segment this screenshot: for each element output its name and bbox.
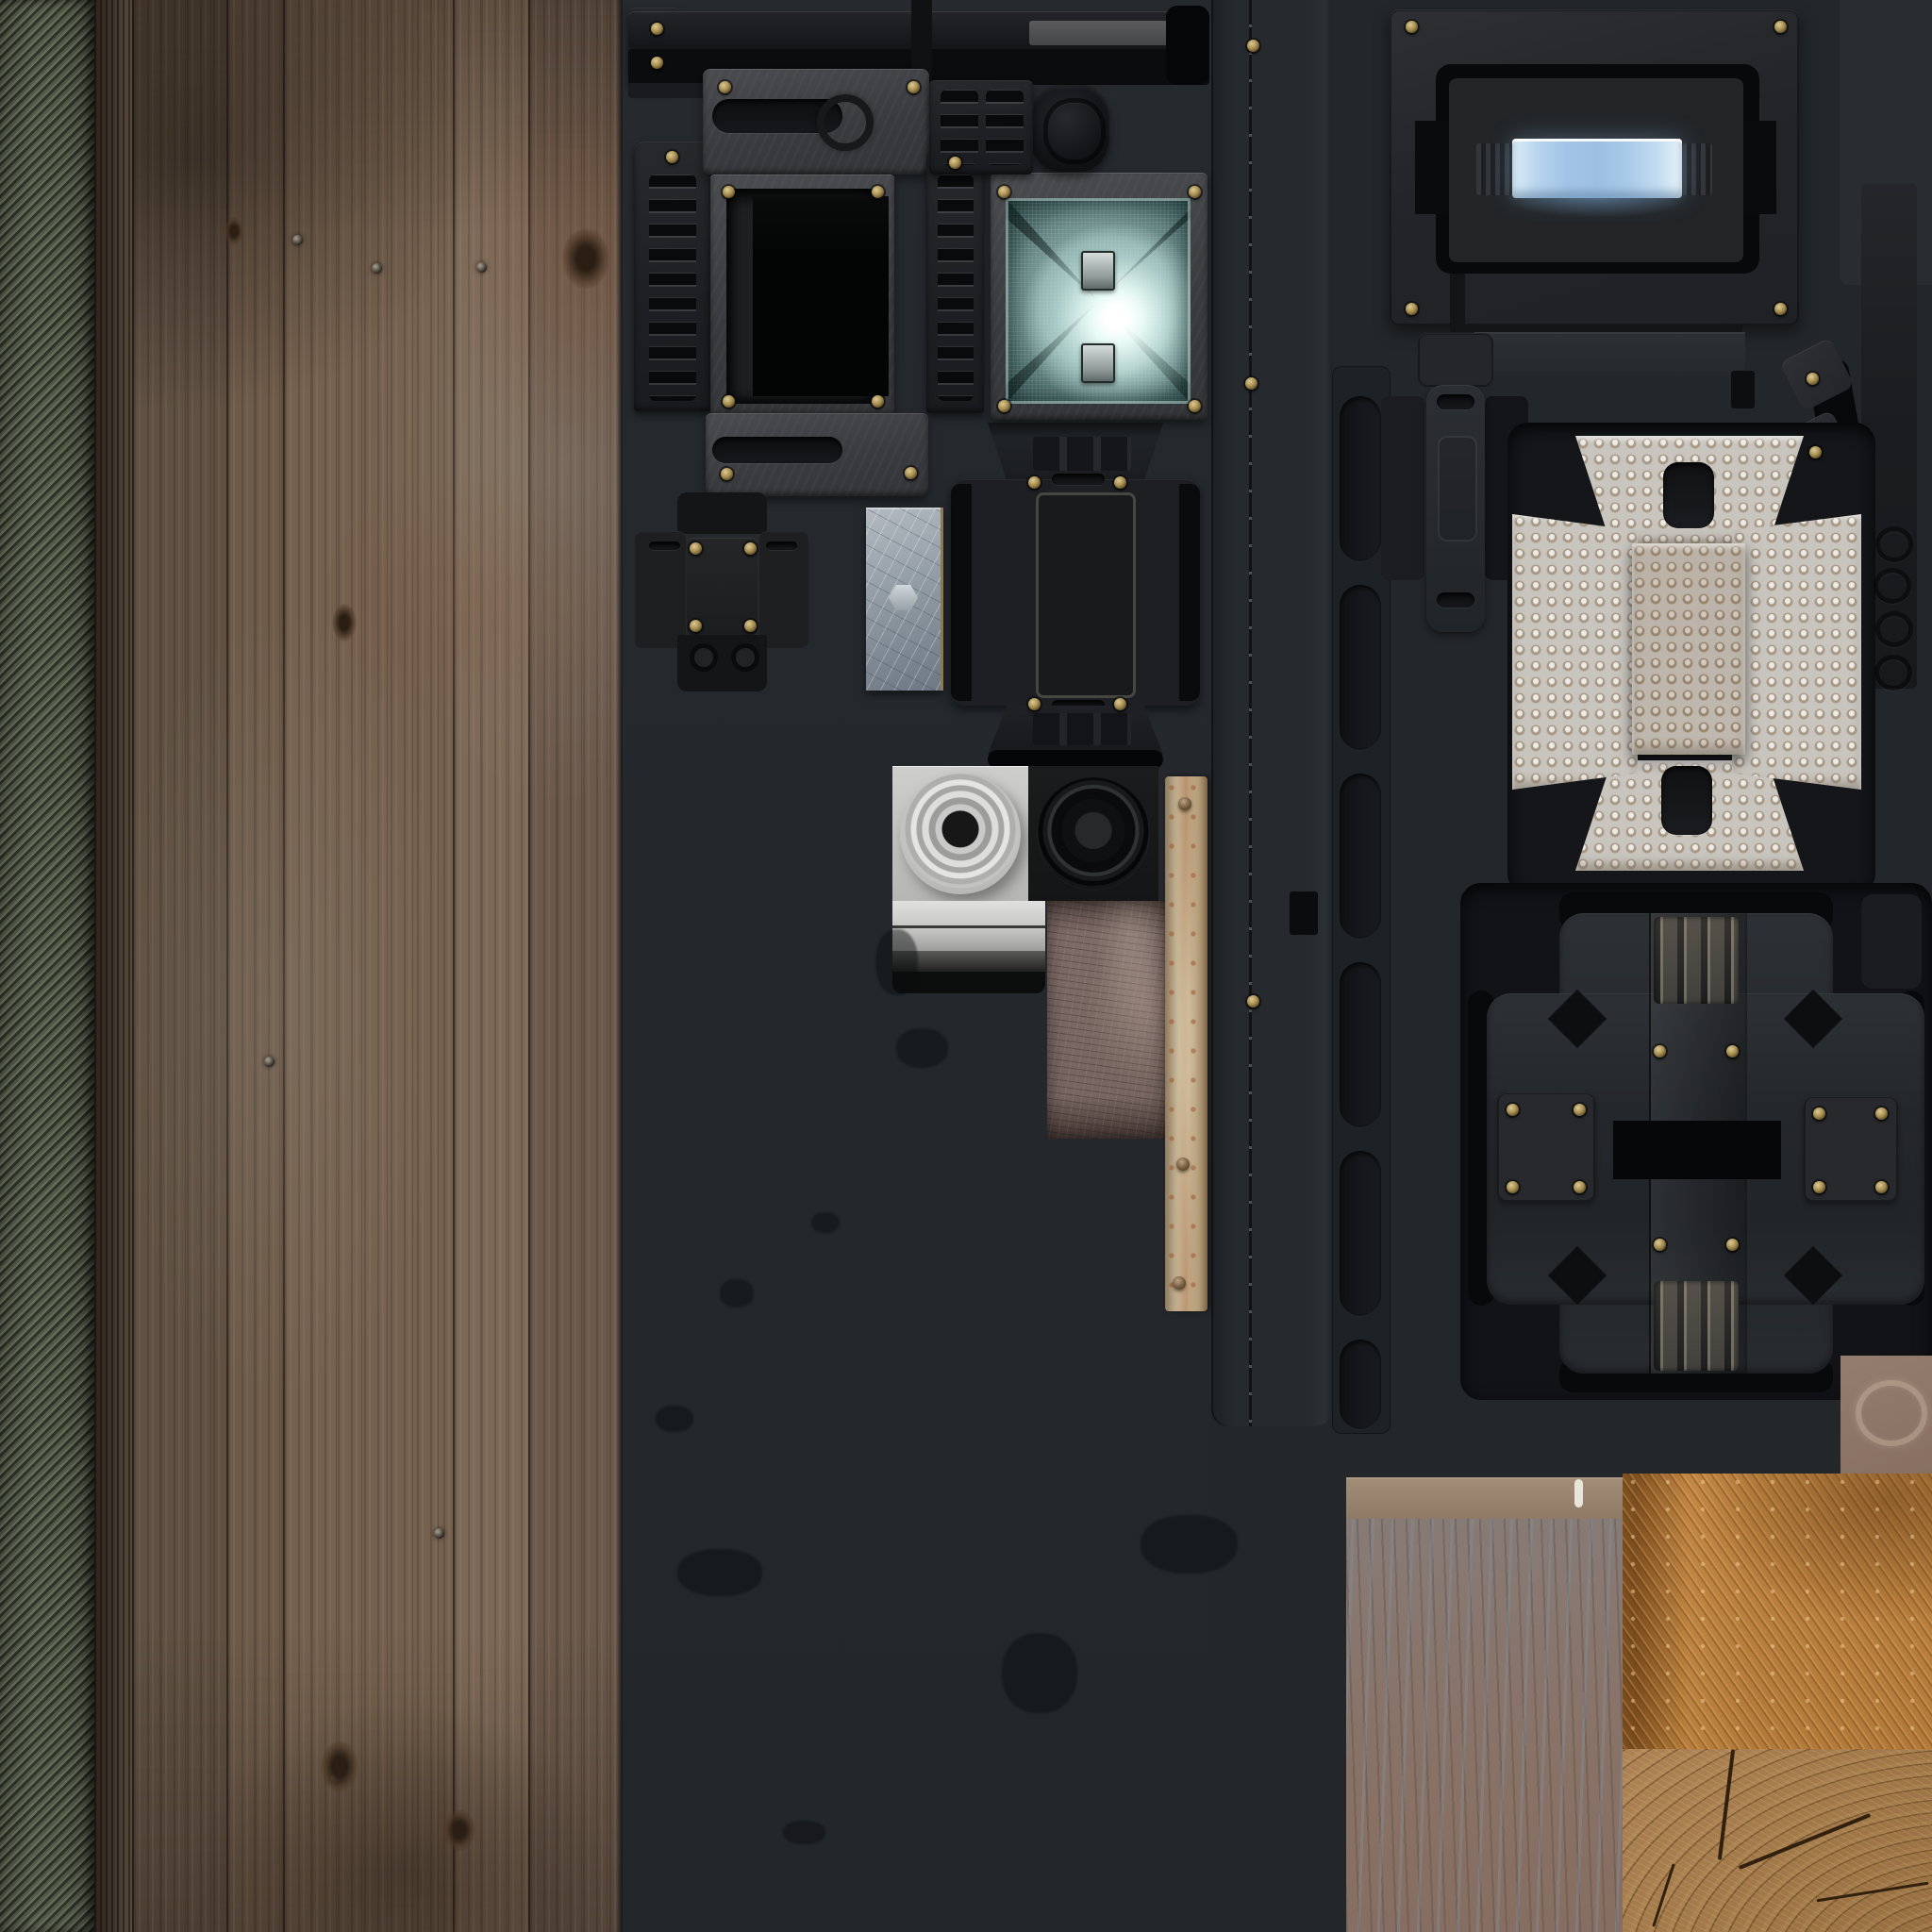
vent-block	[929, 80, 1033, 175]
ribbed-strip	[0, 0, 94, 1932]
screw	[1726, 1239, 1739, 1251]
rust-circle-square	[1840, 1356, 1932, 1481]
bracket-wing-left	[635, 531, 686, 648]
texture-atlas	[0, 0, 1932, 1932]
track-slot	[1340, 585, 1381, 750]
monitor-bottom-plate	[706, 413, 928, 496]
vent-dashes-right	[986, 90, 1024, 165]
divider-notch	[1290, 891, 1318, 935]
side-bar-right	[1179, 484, 1200, 701]
top-right-plate	[1861, 894, 1922, 989]
bracket-hole	[731, 643, 759, 672]
screw	[1245, 377, 1257, 390]
hex-bolt	[889, 585, 918, 610]
screw	[1507, 1104, 1519, 1116]
sawn-orange-wood	[1623, 1474, 1932, 1749]
shelf-notch	[1731, 371, 1755, 408]
nail	[476, 262, 487, 273]
divider-column	[1211, 0, 1332, 1426]
screw	[1189, 400, 1201, 412]
stain-blob	[896, 1028, 948, 1068]
monitor-frame	[710, 175, 894, 416]
wing-slot	[649, 541, 680, 550]
lens-tab-right	[1743, 121, 1776, 214]
screw	[719, 81, 731, 93]
center-recess	[1036, 492, 1136, 698]
screw	[690, 620, 702, 632]
speaker-cone	[1037, 777, 1150, 891]
screw	[1114, 698, 1126, 710]
wood-knot	[332, 604, 357, 641]
screw	[1574, 1104, 1586, 1116]
screw	[1654, 1239, 1666, 1251]
screw	[1574, 1181, 1586, 1193]
connector-block	[1418, 333, 1493, 387]
screw	[723, 186, 735, 198]
screw	[1875, 1181, 1888, 1193]
divider-seam	[1249, 0, 1252, 1426]
flap-body	[951, 479, 1200, 706]
paint-drip	[1574, 1479, 1583, 1507]
cross-flap-right	[1732, 514, 1861, 790]
rail-grooves-top	[1654, 917, 1739, 1004]
rivet	[1178, 797, 1191, 810]
screw	[1875, 1108, 1888, 1120]
crack	[1718, 1749, 1735, 1860]
screw	[949, 157, 961, 169]
lamp-bracket-bottom	[1081, 343, 1115, 383]
crack	[1652, 1863, 1674, 1927]
knob-ring	[1043, 98, 1106, 164]
leather-patch	[1047, 901, 1165, 1139]
nut-ring	[1875, 611, 1913, 647]
rivet	[1176, 1158, 1190, 1171]
flap-top	[988, 423, 1163, 481]
crack	[1817, 1882, 1929, 1903]
dogbone-rail	[1426, 385, 1485, 632]
wood-knot	[443, 1809, 475, 1851]
rail-grooves-bottom	[1654, 1281, 1739, 1371]
wood-planks	[132, 0, 623, 1932]
rail-slot-top	[1437, 394, 1474, 409]
rail-inner	[1438, 436, 1477, 541]
monitor-vent-left	[634, 142, 711, 411]
screw	[908, 81, 920, 93]
bracket-hole	[690, 643, 718, 672]
flap-ribs	[1033, 437, 1131, 471]
screw	[651, 23, 663, 35]
screw	[1406, 21, 1418, 33]
nut-ring	[1874, 655, 1912, 691]
screw	[1774, 303, 1787, 315]
track-slot	[1340, 1340, 1381, 1429]
stain-blob	[677, 1549, 762, 1596]
screw	[721, 468, 733, 480]
screw	[1247, 995, 1259, 1008]
track-slot	[1340, 774, 1381, 939]
screw	[1507, 1181, 1519, 1193]
monitor-top-plate	[703, 69, 929, 175]
screw	[1406, 303, 1418, 315]
knob	[1030, 85, 1109, 172]
screw	[998, 186, 1010, 198]
black-speaker	[1028, 766, 1158, 901]
vent-dashes-left	[941, 90, 978, 165]
screw	[744, 620, 757, 632]
stain-blob	[656, 1406, 693, 1432]
stain-blob	[811, 1212, 840, 1233]
glowing-lens	[1512, 139, 1682, 198]
wood-end-grain	[1623, 1749, 1932, 1932]
cross-black-band	[1613, 1121, 1781, 1179]
rust-painted-panel	[1346, 1477, 1624, 1932]
monitor-vent-mid	[926, 146, 984, 413]
screw	[744, 542, 757, 555]
wing-slot	[766, 541, 797, 550]
screw	[872, 186, 884, 198]
stain-blob	[875, 929, 918, 995]
nail	[292, 235, 303, 245]
rail-slot-bottom	[1437, 592, 1474, 608]
screw	[1028, 698, 1041, 710]
side-bar-left	[951, 484, 972, 701]
white-speaker	[892, 766, 1028, 901]
wing-left	[1381, 396, 1424, 580]
stain-blob	[1002, 1633, 1077, 1713]
track-slot	[1340, 396, 1381, 561]
cross-slot-top	[1663, 462, 1714, 528]
stain-blob	[1141, 1515, 1238, 1574]
frame-seam	[1450, 274, 1465, 330]
screw	[1114, 476, 1126, 489]
wood-plank-edge	[94, 0, 132, 1932]
cross-flap-left	[1512, 514, 1638, 790]
lens-tab-left	[1415, 121, 1449, 214]
wood-right-shadow	[616, 0, 623, 1932]
lens-cap-left	[1476, 143, 1512, 195]
handle-recess	[712, 437, 842, 463]
cross-center	[1632, 543, 1745, 755]
rust-ring	[1856, 1380, 1927, 1446]
stain-blob	[720, 1279, 754, 1307]
screw	[1247, 40, 1259, 52]
flap-ribs	[1033, 713, 1131, 745]
bracket-flap-top	[677, 492, 767, 534]
screw	[651, 57, 663, 69]
bone-strip	[1165, 776, 1207, 1311]
screw	[1774, 21, 1787, 33]
strip-white	[892, 901, 1045, 928]
screw	[1809, 446, 1822, 458]
speaker-rings	[900, 774, 1021, 894]
rail-right-cap	[1166, 6, 1209, 85]
bracket-flap-bottom	[677, 635, 767, 691]
screw	[1813, 1108, 1825, 1120]
handle-ring	[817, 94, 874, 151]
track-slot	[1340, 962, 1381, 1127]
track-slot	[1340, 1151, 1381, 1316]
spotlight-reflector	[1006, 198, 1191, 404]
screw	[1813, 1181, 1825, 1193]
marble-plate	[866, 508, 943, 691]
nut-ring	[1874, 568, 1911, 604]
vent-slots	[649, 175, 696, 401]
monitor-screen	[753, 196, 889, 396]
screw	[1654, 1045, 1666, 1058]
wood-knot	[321, 1740, 358, 1792]
screw	[998, 400, 1010, 412]
screw	[1028, 476, 1041, 489]
lens-glow	[1509, 196, 1685, 217]
wood-knot	[225, 217, 243, 245]
crack	[1739, 1813, 1872, 1870]
lamp-bracket-top	[1081, 251, 1115, 291]
stain-blob	[783, 1821, 825, 1844]
wood-weathering	[132, 0, 623, 1932]
nut-ring	[1875, 526, 1913, 562]
rivet	[1173, 1276, 1186, 1290]
nail	[372, 263, 382, 274]
bracket-wing-right	[759, 531, 808, 648]
screw	[1807, 373, 1819, 385]
screw	[723, 395, 735, 408]
screw	[1726, 1045, 1739, 1058]
slot-top	[1052, 474, 1105, 485]
cross-slot-bottom	[1661, 766, 1712, 835]
nail	[434, 1528, 444, 1539]
screw	[872, 395, 884, 408]
screw	[1189, 186, 1201, 198]
shelf	[1474, 332, 1745, 375]
nail	[264, 1057, 275, 1067]
frame-seam-h	[1450, 325, 1742, 332]
screw	[690, 542, 702, 555]
wood-knot	[562, 228, 609, 289]
lens-cap-right	[1682, 143, 1712, 195]
screw	[666, 151, 678, 163]
screw	[905, 467, 917, 479]
vent-slots	[938, 175, 974, 401]
flap-bottom	[988, 706, 1163, 755]
rust-panel-body	[1346, 1519, 1624, 1932]
